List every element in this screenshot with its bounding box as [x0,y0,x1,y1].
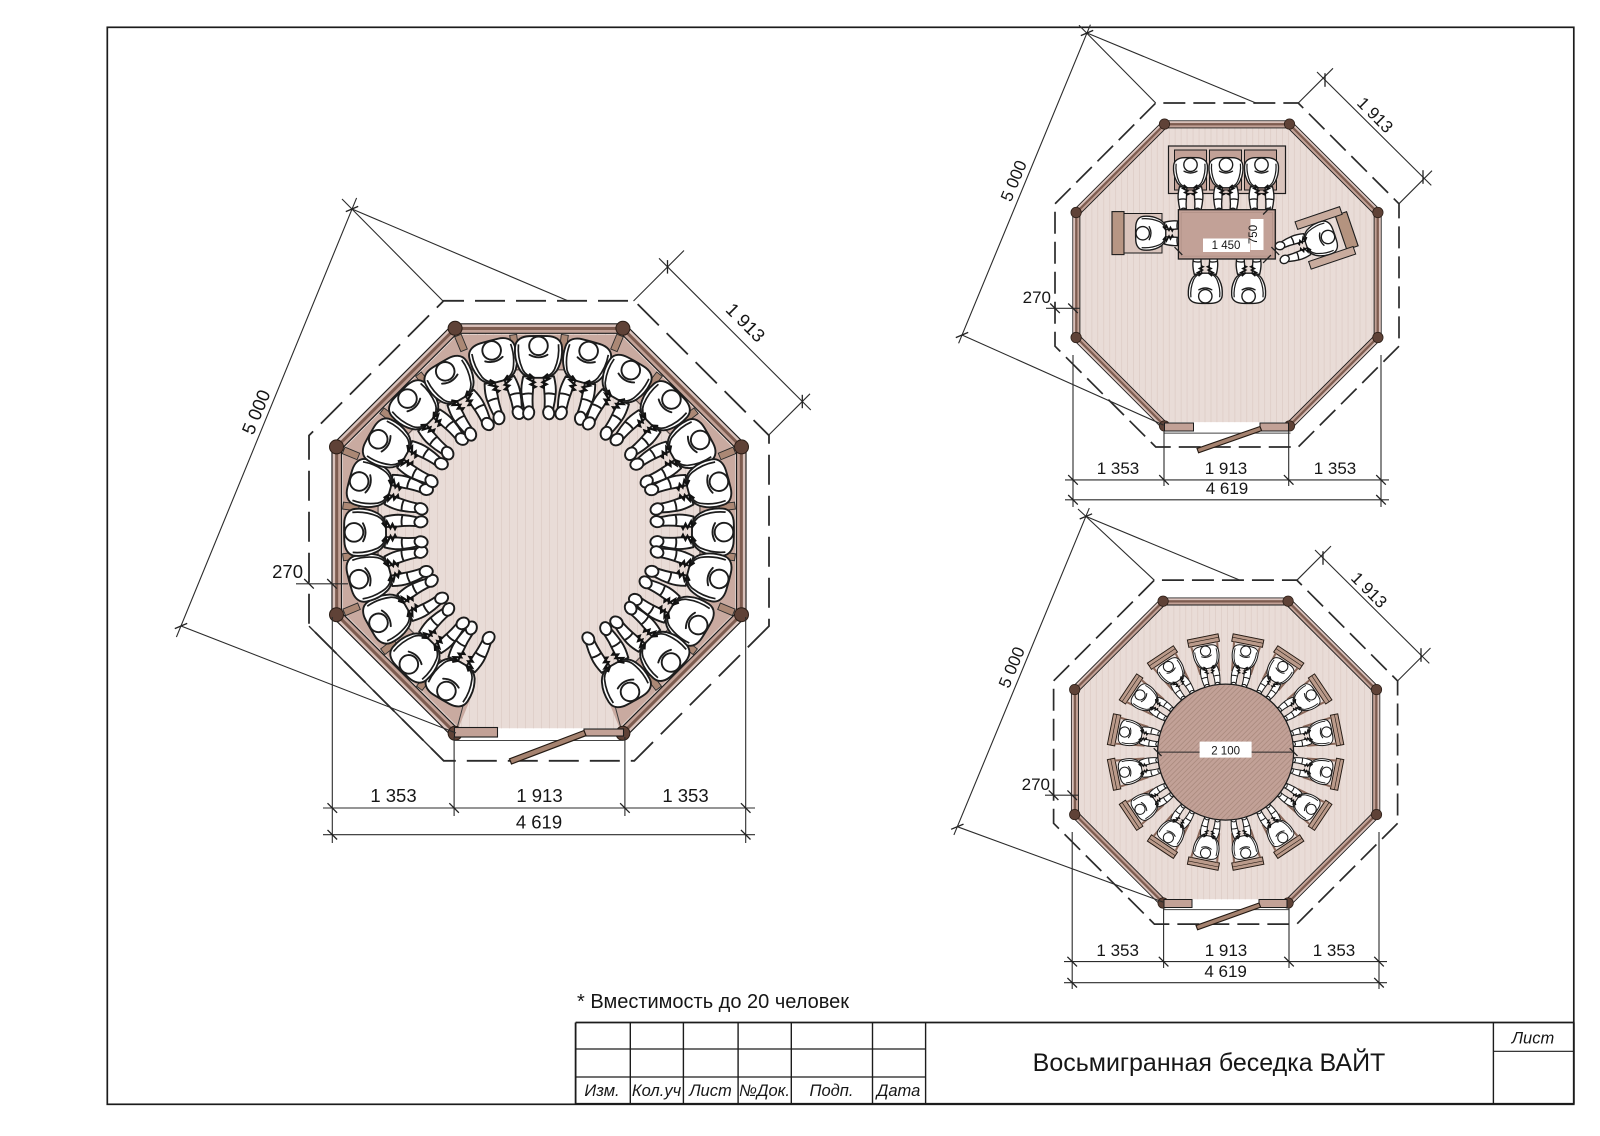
svg-text:Лист: Лист [688,1082,731,1100]
svg-text:Дата: Дата [875,1082,921,1100]
svg-text:1 353: 1 353 [1314,459,1357,478]
svg-text:1 353: 1 353 [662,785,708,806]
svg-text:№Док.: №Док. [739,1082,790,1100]
svg-text:1 353: 1 353 [370,785,416,806]
svg-text:1 353: 1 353 [1313,941,1356,960]
svg-text:Изм.: Изм. [584,1082,619,1100]
svg-text:750: 750 [1248,225,1260,244]
svg-text:4 619: 4 619 [516,812,562,833]
svg-text:Восьмигранная беседка ВАЙТ: Восьмигранная беседка ВАЙТ [1033,1047,1386,1077]
svg-text:270: 270 [272,561,303,582]
svg-text:1 353: 1 353 [1096,941,1139,960]
svg-text:Подп.: Подп. [810,1082,854,1100]
svg-text:1 913: 1 913 [516,785,562,806]
svg-text:270: 270 [1023,288,1051,307]
svg-text:2 100: 2 100 [1211,746,1240,758]
svg-text:Лист: Лист [1511,1030,1554,1048]
svg-text:270: 270 [1022,775,1050,794]
svg-text:1 450: 1 450 [1212,240,1241,252]
svg-text:* Вместимость до 20 челове: * Вместимость до 20 человек [577,991,849,1013]
svg-text:Кол.уч: Кол.уч [632,1082,682,1100]
svg-text:4 619: 4 619 [1204,962,1247,981]
svg-text:1 353: 1 353 [1097,459,1140,478]
svg-text:1 913: 1 913 [1205,459,1248,478]
svg-text:1 913: 1 913 [1205,941,1248,960]
svg-text:4 619: 4 619 [1206,479,1249,498]
